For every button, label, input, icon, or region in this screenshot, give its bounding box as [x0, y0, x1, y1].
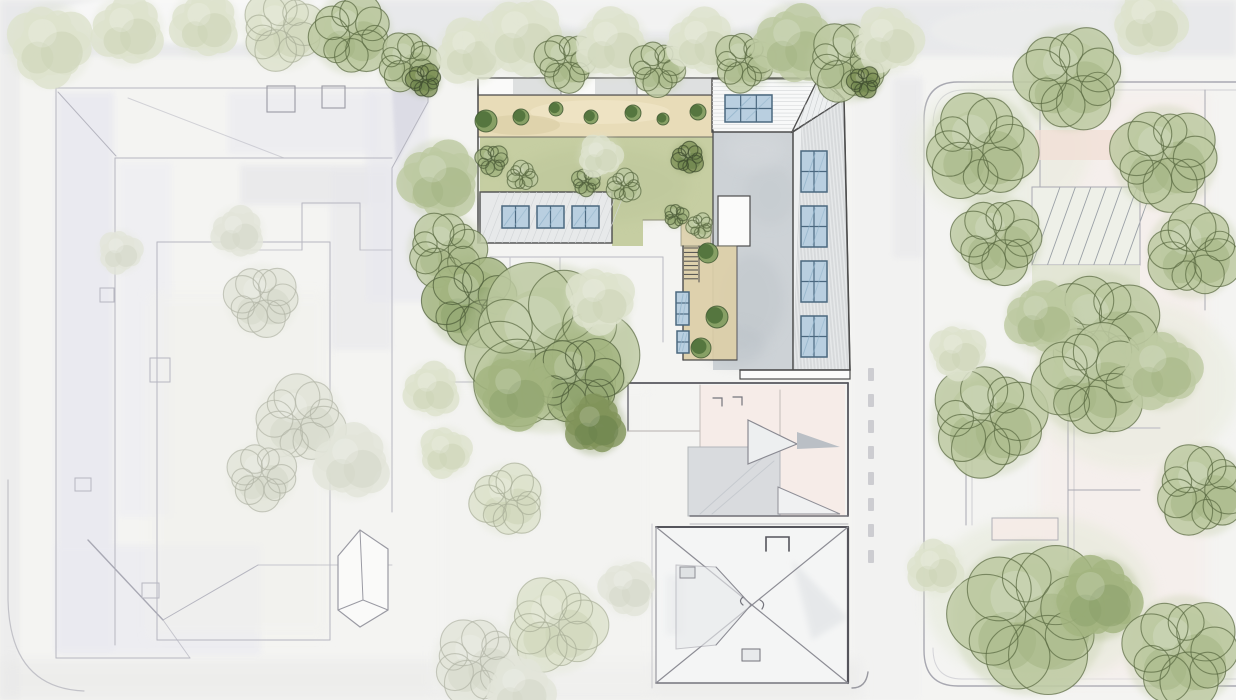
- hipped-vent: [742, 649, 760, 661]
- path-shrub: [691, 338, 711, 358]
- right-small-bldg: [992, 518, 1058, 540]
- watercolor-site-plan: [0, 0, 1236, 700]
- roof-skylight: [801, 261, 827, 302]
- roof-strip-seg: [595, 79, 637, 94]
- terrace-shrub: [584, 110, 598, 124]
- tree: [1155, 443, 1236, 537]
- terrace-shrub: [657, 113, 669, 125]
- roof-cutout: [718, 196, 750, 246]
- south-wall-strip: [740, 370, 850, 379]
- site-plan-canvas: [0, 0, 1236, 700]
- path-glass: [676, 292, 689, 325]
- left-margin-road: [0, 56, 20, 700]
- wing-skylight: [537, 206, 564, 228]
- terrace-shrub: [690, 104, 706, 120]
- terrace-shrub: [475, 110, 497, 132]
- wing-skylight: [572, 206, 599, 228]
- wing-skylight: [502, 206, 529, 228]
- flat-roof-mottle: [744, 165, 796, 225]
- pink-roof-plane: [688, 447, 780, 516]
- path-shrub: [706, 306, 728, 328]
- terrace-shrub: [625, 105, 641, 121]
- path-shrub: [698, 243, 718, 263]
- roof-skylight: [801, 316, 827, 357]
- gable-window: [725, 95, 772, 122]
- flat-roof-mottle: [725, 132, 785, 168]
- roof-skylight: [801, 151, 827, 192]
- scene-root: [0, 0, 1236, 700]
- path-glass: [677, 331, 689, 353]
- terrace-shrub: [549, 102, 563, 116]
- terrace-shrub: [513, 109, 529, 125]
- hipped-vent: [680, 567, 695, 578]
- roof-skylight: [801, 206, 827, 247]
